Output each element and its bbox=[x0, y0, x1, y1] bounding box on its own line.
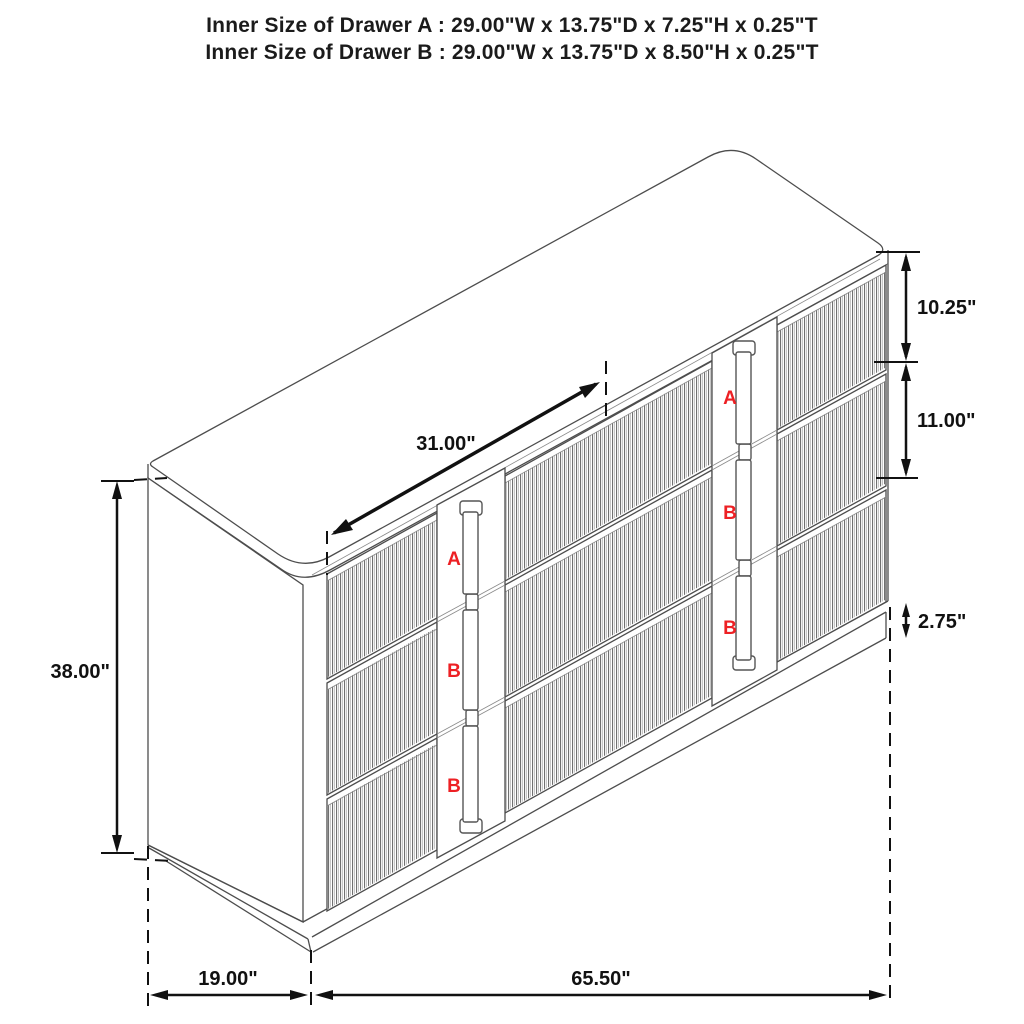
width-label: 65.50" bbox=[571, 968, 631, 990]
depth-label: 19.00" bbox=[198, 968, 258, 990]
dresser-body: A B B A B B bbox=[148, 150, 888, 952]
drawer-fronts-right-section bbox=[777, 265, 886, 662]
base-height-label: 2.75" bbox=[918, 611, 966, 633]
drawer-b1-letter-left: B bbox=[447, 661, 461, 682]
drawer-fronts-left-section bbox=[327, 513, 437, 911]
drawer-a-letter-left: A bbox=[447, 549, 461, 570]
dim-width: 65.50" bbox=[315, 968, 887, 1000]
drawer-b-height-label: 11.00" bbox=[917, 410, 975, 432]
dresser-line-drawing: A B B A B B bbox=[0, 0, 1024, 1024]
overall-height-label: 38.00" bbox=[50, 661, 110, 683]
drawer-b2-letter-left: B bbox=[447, 776, 461, 797]
dim-base-height: 2.75" bbox=[902, 603, 966, 638]
drawer-a-letter-right: A bbox=[723, 388, 737, 409]
drawer-a-height-label: 10.25" bbox=[917, 297, 977, 319]
dim-drawer-b-height: 11.00" bbox=[876, 363, 975, 478]
dim-drawer-a-height: 10.25" bbox=[874, 252, 977, 362]
dim-depth: 19.00" bbox=[150, 968, 308, 1000]
dim-overall-height: 38.00" bbox=[50, 481, 134, 853]
drawer-b2-letter-right: B bbox=[723, 618, 737, 639]
top-drawer-width-label: 31.00" bbox=[416, 433, 476, 455]
drawer-b1-letter-right: B bbox=[723, 503, 737, 524]
dimension-diagram: Inner Size of Drawer A : 29.00"W x 13.75… bbox=[0, 0, 1024, 1024]
